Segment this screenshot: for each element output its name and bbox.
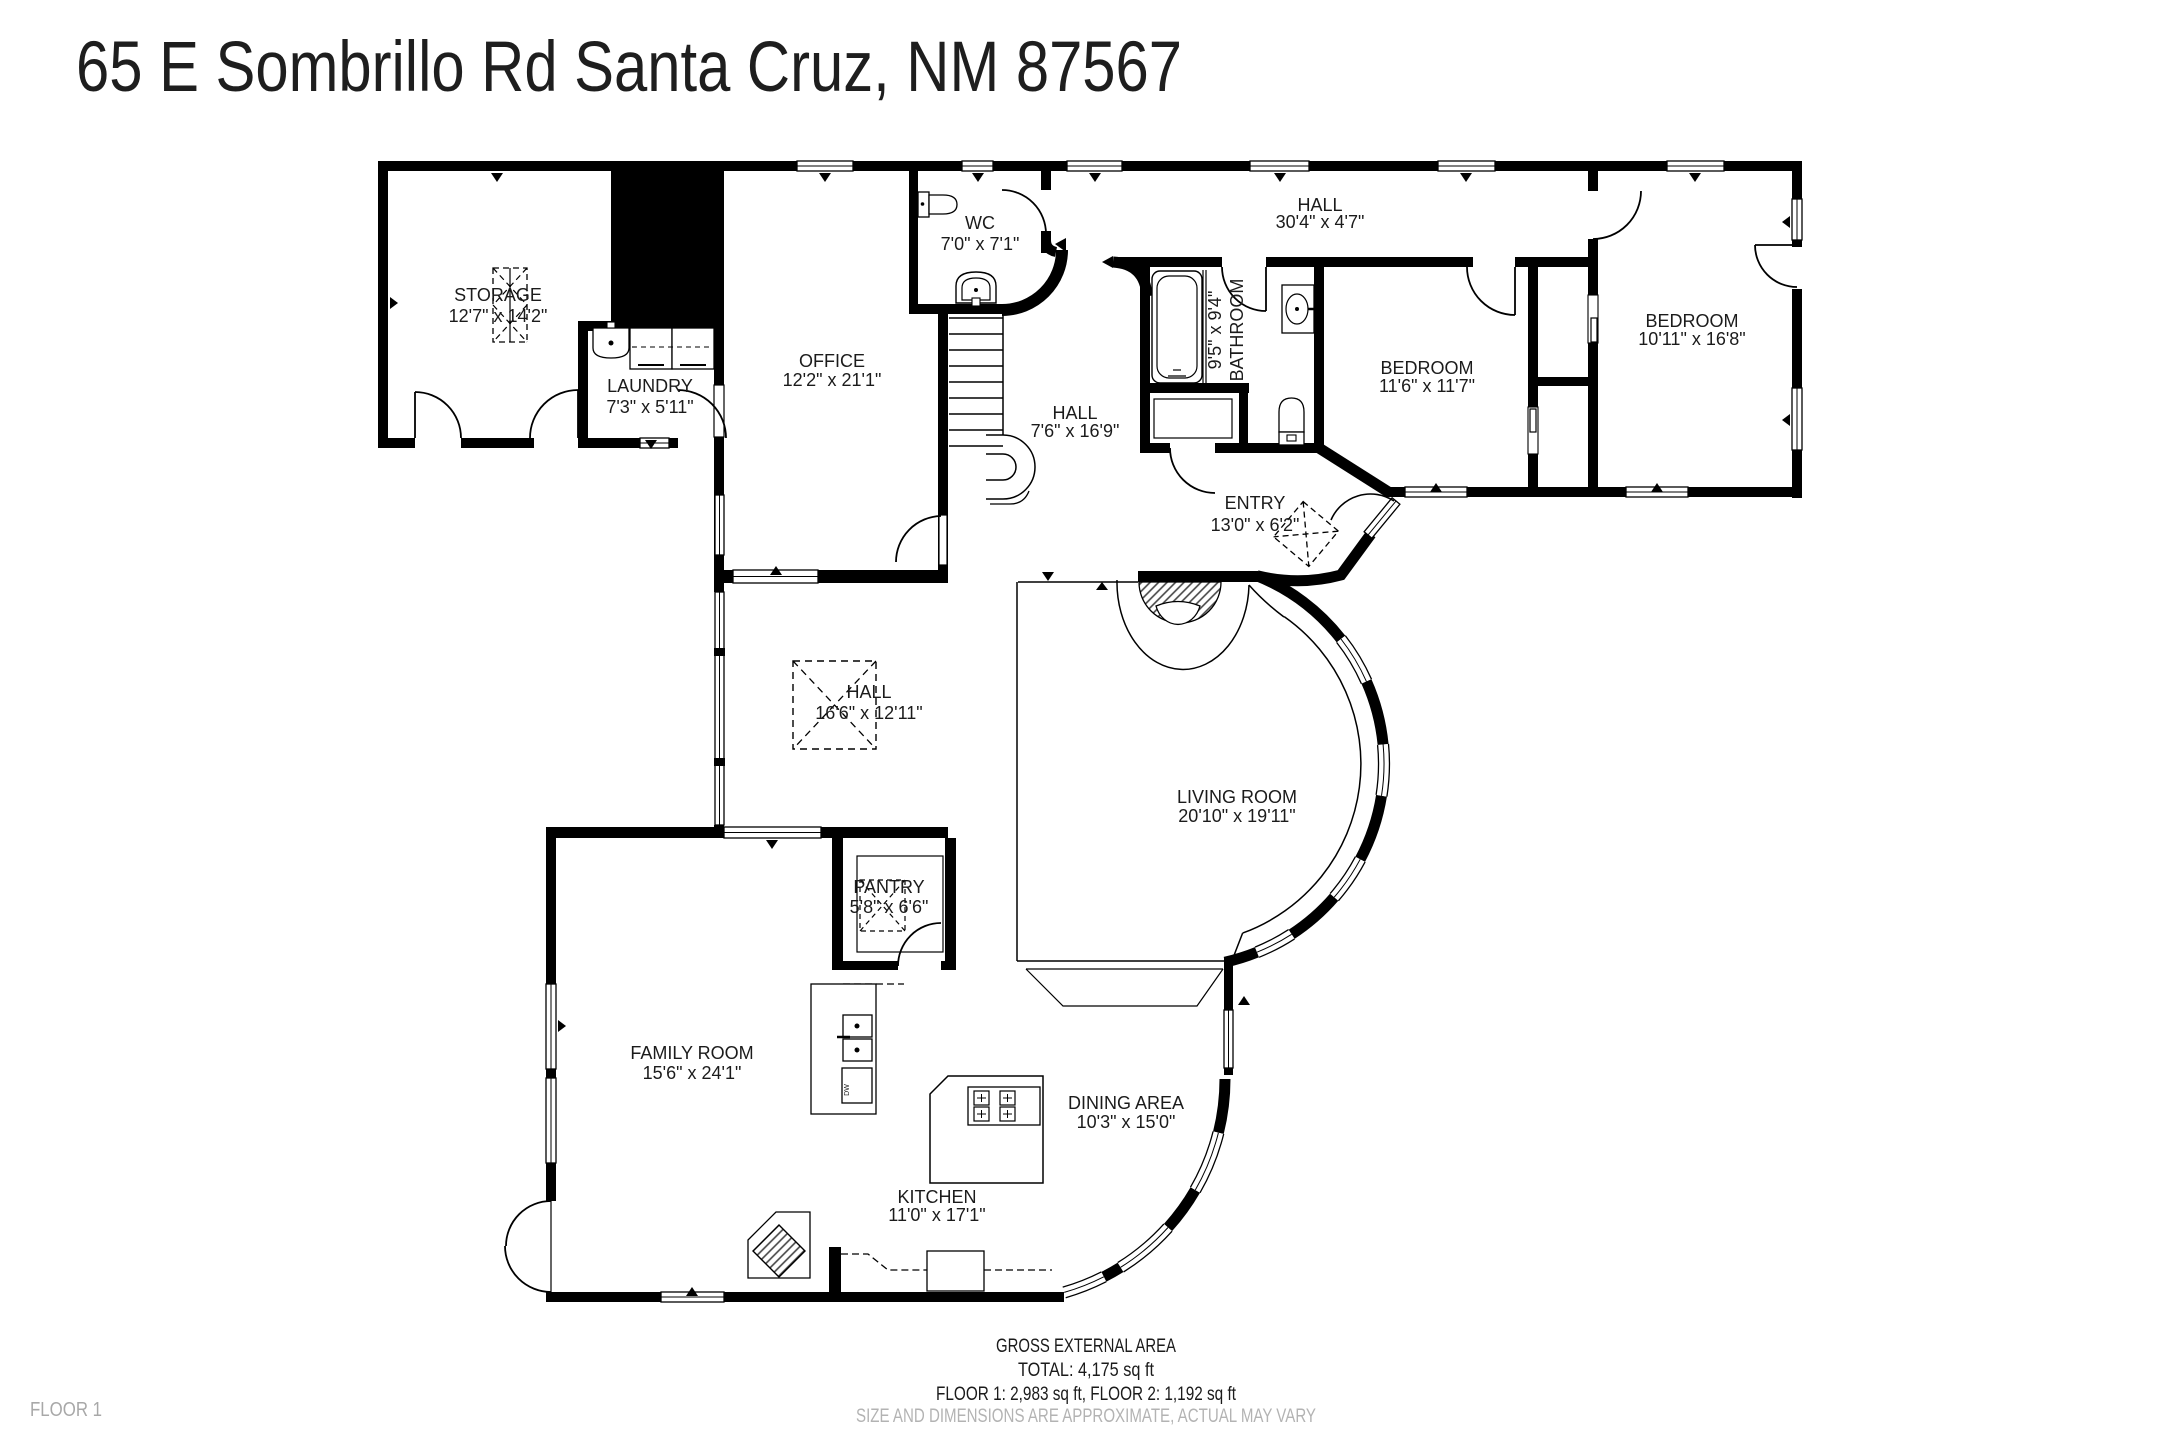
svg-text:10'11" x 16'8": 10'11" x 16'8" [1638,329,1745,349]
svg-text:11'0" x 17'1": 11'0" x 17'1" [888,1205,985,1225]
svg-text:LIVING ROOM: LIVING ROOM [1177,787,1297,807]
svg-text:7'0" x 7'1": 7'0" x 7'1" [941,234,1020,254]
svg-text:BATHROOM: BATHROOM [1227,279,1247,382]
svg-text:BEDROOM: BEDROOM [1380,358,1473,378]
svg-text:GROSS EXTERNAL AREA: GROSS EXTERNAL AREA [996,1336,1176,1357]
svg-text:12'2" x 21'1": 12'2" x 21'1" [783,370,882,390]
svg-text:ENTRY: ENTRY [1225,493,1286,513]
svg-text:LAUNDRY: LAUNDRY [607,376,693,396]
svg-text:9'5" x 9'4": 9'5" x 9'4" [1205,291,1225,370]
svg-text:20'10" x 19'11": 20'10" x 19'11" [1178,806,1295,826]
svg-text:7'3" x 5'11": 7'3" x 5'11" [606,397,693,417]
svg-text:DINING AREA: DINING AREA [1068,1093,1184,1113]
svg-text:OFFICE: OFFICE [799,351,865,371]
svg-text:TOTAL: 4,175 sq ft: TOTAL: 4,175 sq ft [1018,1360,1155,1381]
svg-text:10'3" x 15'0": 10'3" x 15'0" [1077,1112,1176,1132]
svg-text:STORAGE: STORAGE [454,285,542,305]
svg-text:HALL: HALL [1052,403,1097,423]
svg-text:HALL: HALL [846,682,891,702]
svg-text:PANTRY: PANTRY [853,877,924,897]
svg-text:12'7" x 14'2": 12'7" x 14'2" [449,306,548,326]
svg-text:FLOOR 1: FLOOR 1 [30,1399,102,1421]
svg-text:DW: DW [844,1084,851,1096]
svg-text:5'8" x 6'6": 5'8" x 6'6" [850,897,929,917]
svg-text:7'6" x 16'9": 7'6" x 16'9" [1031,421,1120,441]
svg-text:15'6" x 24'1": 15'6" x 24'1" [643,1063,742,1083]
svg-text:WC: WC [965,213,995,233]
svg-text:BEDROOM: BEDROOM [1645,311,1738,331]
svg-text:KITCHEN: KITCHEN [897,1187,976,1207]
svg-text:SIZE AND DIMENSIONS ARE APPROX: SIZE AND DIMENSIONS ARE APPROXIMATE, ACT… [856,1406,1316,1427]
svg-text:16'6" x 12'11": 16'6" x 12'11" [815,703,922,723]
svg-text:65 E Sombrillo Rd Santa Cruz,: 65 E Sombrillo Rd Santa Cruz, NM 87567 [76,28,1182,107]
svg-text:FLOOR 1: 2,983 sq ft, FLOOR 2:: FLOOR 1: 2,983 sq ft, FLOOR 2: 1,192 sq … [936,1384,1237,1405]
svg-text:30'4" x 4'7": 30'4" x 4'7" [1276,212,1365,232]
svg-text:13'0" x 6'2": 13'0" x 6'2" [1211,515,1300,535]
svg-text:FAMILY ROOM: FAMILY ROOM [630,1043,753,1063]
svg-text:11'6" x 11'7": 11'6" x 11'7" [1379,376,1475,396]
